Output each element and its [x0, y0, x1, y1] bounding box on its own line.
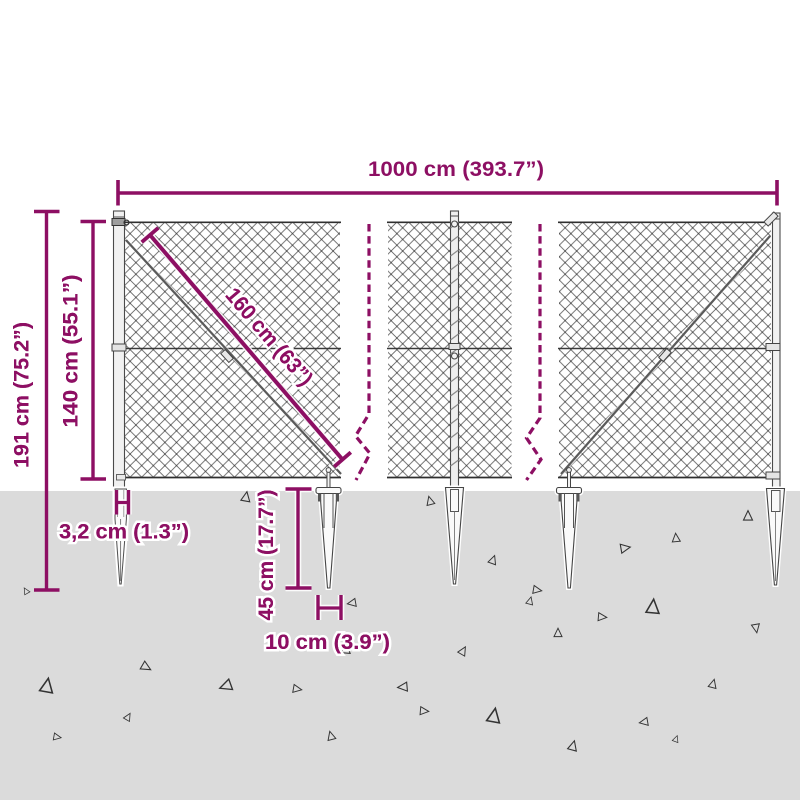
svg-text:45 cm (17.7”): 45 cm (17.7”) [254, 490, 278, 621]
svg-text:140 cm (55.1”): 140 cm (55.1”) [59, 275, 83, 428]
svg-text:191 cm (75.2”): 191 cm (75.2”) [10, 322, 34, 468]
svg-text:3,2 cm (1.3”): 3,2 cm (1.3”) [59, 520, 189, 544]
svg-text:1000 cm (393.7”): 1000 cm (393.7”) [368, 157, 544, 181]
svg-text:10 cm (3.9”): 10 cm (3.9”) [265, 630, 390, 654]
